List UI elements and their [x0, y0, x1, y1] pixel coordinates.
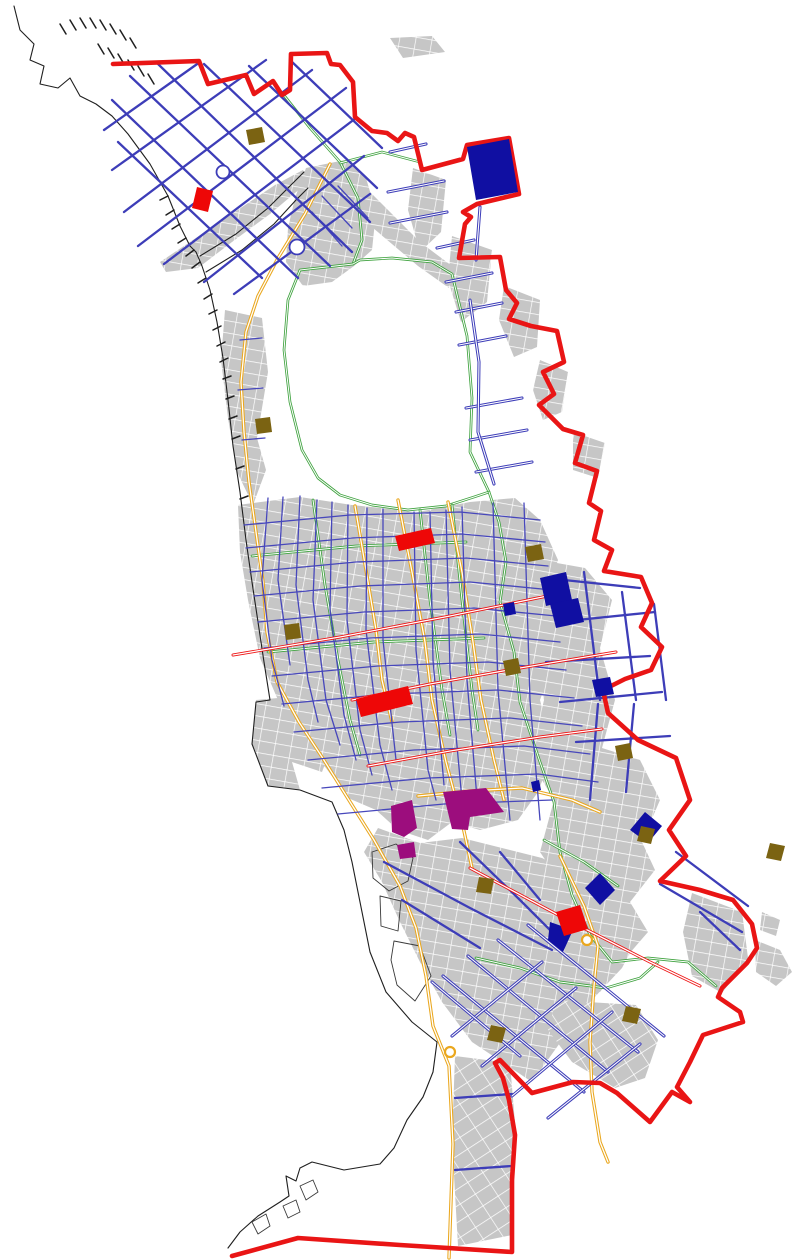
harbor-piers-3 — [90, 18, 96, 28]
harbor-piers-5 — [110, 24, 116, 34]
roundabout-south — [445, 1047, 455, 1057]
navy-east-3 — [592, 677, 614, 697]
olive-west — [284, 623, 301, 640]
nw-diag-a6 — [290, 60, 382, 148]
harbor-piers-2 — [80, 18, 86, 28]
navy-small-1 — [503, 602, 516, 616]
harbor-piers-0 — [60, 24, 66, 34]
purple-small — [397, 842, 416, 859]
harbor-piers-15 — [166, 210, 174, 215]
harbor-piers-21 — [204, 294, 212, 299]
green-ne-branch — [340, 152, 420, 163]
harbor-piers-1 — [70, 20, 76, 30]
navy-ne-large — [467, 139, 518, 200]
harbor-piers-12 — [138, 66, 144, 76]
map-layers — [14, 6, 792, 1258]
lobe-fragment-2 — [760, 912, 780, 936]
islet-1 — [300, 1180, 318, 1200]
city-plan-map — [0, 0, 800, 1260]
roundabout-se-1 — [582, 935, 592, 945]
blue-double-roads-0-core — [390, 144, 426, 152]
nw-diag-b7 — [104, 62, 200, 130]
roundabout-nw-2 — [290, 240, 305, 255]
islet-2 — [283, 1200, 300, 1218]
blue-major-roads-21 — [622, 592, 636, 700]
olive-coast — [255, 417, 272, 434]
harbor-piers — [60, 18, 248, 499]
olive-south-1 — [476, 877, 494, 894]
blue-major-roads-25 — [676, 852, 748, 906]
olive-nw — [246, 127, 265, 145]
blue-double-roads-7-core — [466, 398, 522, 408]
olive-center — [503, 658, 521, 676]
harbor-piers-22 — [209, 310, 217, 314]
harbor-piers-13 — [148, 74, 154, 84]
map-stage — [0, 0, 800, 1260]
olive-far-east — [766, 843, 785, 861]
harbor-piers-8 — [98, 44, 104, 54]
top-parallelogram — [390, 36, 445, 58]
red-zone-nw — [192, 187, 213, 212]
islet-3 — [252, 1214, 270, 1234]
harbor-piers-9 — [108, 48, 114, 58]
roundabout-nw-1 — [217, 166, 230, 179]
harbor-piers-16 — [172, 224, 180, 229]
olive-ne — [525, 544, 544, 562]
harbor-piers-4 — [100, 20, 106, 30]
harbor-piers-7 — [130, 38, 136, 48]
harbor-piers-23 — [213, 326, 221, 330]
lobe-fragment-1 — [755, 940, 792, 986]
blue-double-roads-10-core — [470, 300, 494, 484]
blue-double-roads-9-core — [476, 462, 532, 472]
harbor-piers-14 — [160, 196, 168, 200]
harbor-piers-6 — [120, 30, 126, 40]
harbor-piers-17 — [178, 238, 186, 243]
olive-east-1 — [615, 743, 633, 761]
